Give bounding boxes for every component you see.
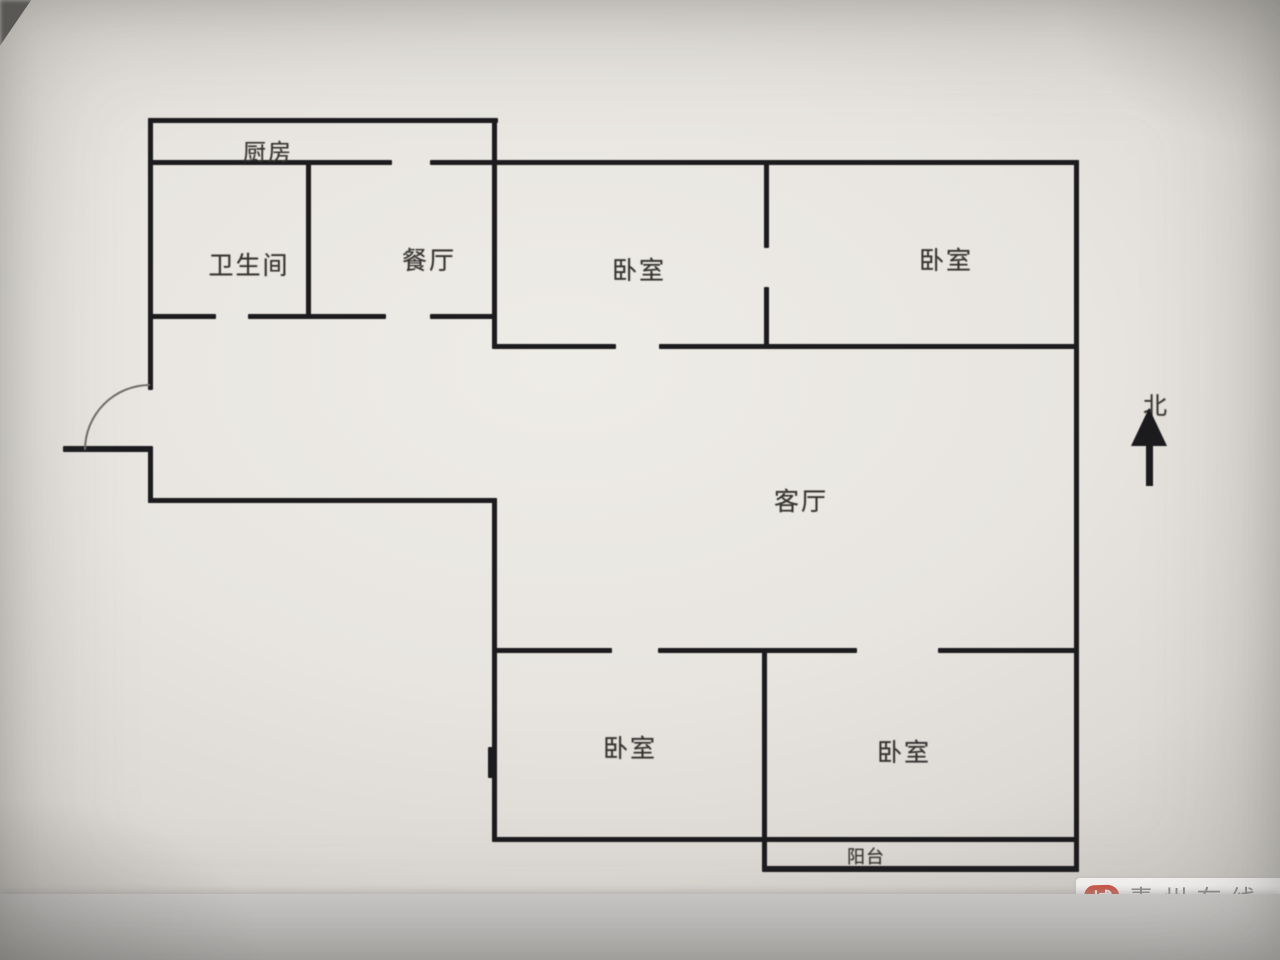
room-label-bedroom-top-right: 卧室 <box>919 241 973 277</box>
wall-segment <box>493 648 612 653</box>
wall-segment <box>762 648 767 872</box>
north-arrow-head-icon <box>1131 408 1167 446</box>
room-label-living: 客厅 <box>774 482 828 518</box>
wall-segment <box>764 866 1079 872</box>
wall-segment <box>1074 160 1079 872</box>
north-arrow-shaft <box>1146 444 1153 486</box>
room-label-dining: 餐厅 <box>402 241 456 277</box>
wall-segment <box>148 446 153 503</box>
floorplan-photo: 厨房 卫生间 餐厅 卧室 卧室 客厅 卧室 卧室 阳台 北 城 市 青州在线 w… <box>0 0 1280 960</box>
wall-segment <box>493 837 1079 842</box>
wall-segment <box>764 287 769 349</box>
wall-segment <box>148 314 216 319</box>
wall-segment <box>148 498 497 503</box>
wall-segment <box>492 498 497 842</box>
wall-segment <box>938 648 1079 653</box>
wall-segment <box>764 164 769 248</box>
page-bottom-edge <box>0 894 1280 960</box>
wall-segment <box>430 314 497 319</box>
wall-segment <box>493 344 616 349</box>
wall-segment <box>488 747 497 778</box>
wall-segment <box>659 344 1079 349</box>
wall-segment <box>148 118 153 390</box>
wall-segment <box>306 160 311 319</box>
room-label-bedroom-bottom-left: 卧室 <box>603 729 657 765</box>
wall-segment <box>492 118 497 349</box>
room-label-bedroom-top-left: 卧室 <box>612 251 666 287</box>
room-label-bathroom: 卫生间 <box>208 246 289 282</box>
room-label-balcony: 阳台 <box>847 843 885 869</box>
wall-segment <box>148 118 498 123</box>
wall-segment <box>658 648 857 653</box>
room-label-kitchen: 厨房 <box>243 133 293 167</box>
floor-plan: 厨房 卫生间 餐厅 卧室 卧室 客厅 卧室 卧室 阳台 北 <box>0 0 1280 960</box>
room-label-bedroom-bottom-right: 卧室 <box>877 733 931 769</box>
wall-segment <box>430 160 1079 165</box>
wall-segment <box>248 314 386 319</box>
entry-door-arc <box>84 384 150 450</box>
